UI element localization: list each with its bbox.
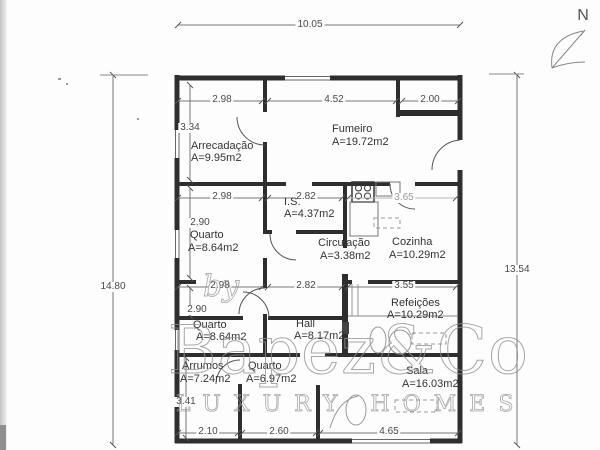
room-circulacao-area: A=3.38m2 (320, 251, 370, 262)
dim-overall-right: 13.54 (502, 265, 531, 275)
dim-lower-2: 2.82 (294, 281, 317, 291)
dim-bottom-3: 4.65 (377, 427, 400, 437)
dim-top-3: 2.00 (418, 95, 441, 105)
extension-lines (100, 74, 524, 75)
dim-left-1: 3.34 (178, 123, 201, 133)
room-refeicoes-name: Refeições (391, 298, 440, 309)
scan-speck (66, 83, 68, 85)
room-is-area: A=4.37m2 (284, 209, 334, 220)
scan-speck (137, 118, 139, 120)
floorplan-page: N 10.05 14.80 13.54 2.98 4.52 2.00 2.98 … (0, 0, 600, 450)
dim-left-2: 2.90 (188, 218, 211, 228)
room-circulacao-name: Circulação (318, 238, 370, 249)
dim-top-1: 2.98 (210, 95, 233, 105)
room-arrecadacao-area: A=9.95m2 (191, 153, 241, 164)
room-cozinha-area: A=10.29m2 (389, 250, 446, 261)
watermark-by: by (203, 272, 239, 302)
watermark-brand: Bapez&Co (168, 318, 529, 384)
room-quarto1-area: A=8.64m2 (188, 243, 238, 254)
room-fumeiro-area: A=19.72m2 (332, 137, 389, 148)
north-arrow-icon (552, 30, 585, 68)
dim-overall-left: 14.80 (98, 282, 127, 292)
room-cozinha-name: Cozinha (392, 237, 432, 248)
dim-bottom-1: 2.10 (196, 427, 219, 437)
room-fumeiro-name: Fumeiro (332, 124, 372, 135)
dim-top-2: 4.52 (322, 95, 345, 105)
dim-lower-3: 3.55 (392, 281, 415, 291)
watermark-tagline: LUXURY HOMES (176, 394, 526, 416)
room-quarto1-name: Quarto (190, 230, 224, 241)
dim-overall-top: 10.05 (295, 20, 324, 30)
scan-edge-artifact (0, 0, 7, 450)
room-arrecadacao-name: Arrecadação (191, 141, 253, 152)
scan-speck (58, 78, 61, 80)
dim-mid-1: 2.98 (210, 192, 233, 202)
north-label: N (577, 8, 589, 24)
room-is-name: I.S. (284, 197, 301, 208)
dim-mid-3: 3.65 (392, 193, 415, 203)
scan-smudge (0, 425, 6, 450)
dim-bottom-2: 2.60 (267, 427, 290, 437)
